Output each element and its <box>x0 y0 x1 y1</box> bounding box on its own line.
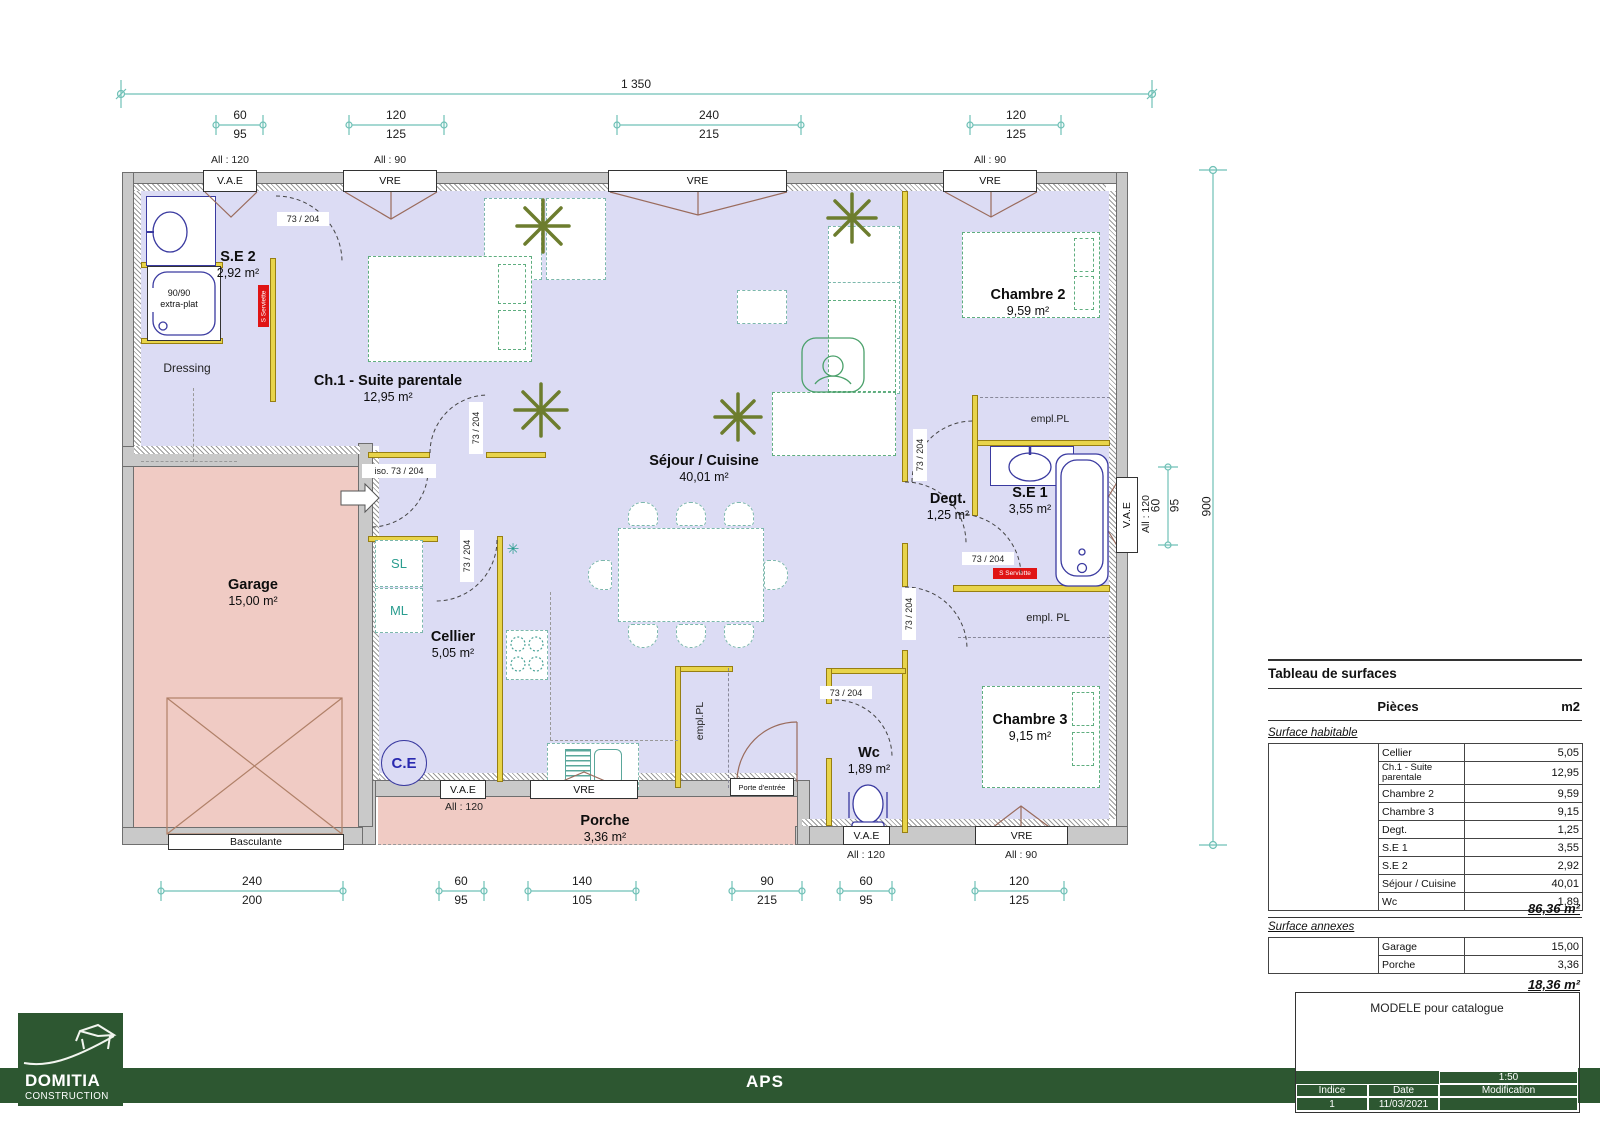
door-size-text: 73 / 204 <box>462 540 472 573</box>
washer-slot: SL <box>375 540 423 587</box>
window-label: VRE <box>687 175 709 187</box>
dim-right-a: 60 <box>1150 491 1163 521</box>
dryer-slot: ML <box>375 588 423 633</box>
chair <box>724 502 754 526</box>
row-value: 9,59 <box>1465 785 1583 803</box>
date-header: Date <box>1368 1084 1439 1097</box>
room-name: Porche <box>545 812 665 830</box>
row-value: 3,55 <box>1465 839 1583 857</box>
annexes-total: 18,36 m² <box>1420 977 1580 992</box>
window-label: V.A.E <box>217 175 243 187</box>
annexes-section-label: Surface annexes <box>1268 921 1428 933</box>
modification-label: Modification <box>1482 1085 1535 1096</box>
dim-a: 90 <box>737 875 797 888</box>
dim-b: 95 <box>431 894 491 907</box>
shower-size: 90/90 <box>168 288 191 298</box>
house-icon <box>18 1019 123 1071</box>
window-label: VRE <box>379 175 401 187</box>
modification-value <box>1439 1097 1578 1111</box>
room-label-se1: S.E 1 3,55 m² <box>950 484 1110 518</box>
door-size-text: iso. 73 / 204 <box>374 466 423 476</box>
dryer-label: ML <box>376 589 422 632</box>
dim-b: 215 <box>679 128 739 141</box>
date-value-text: 11/03/2021 <box>1379 1099 1428 1110</box>
bed-ch1-pillow-2 <box>498 310 526 350</box>
insulation-bottom-right <box>802 819 1109 826</box>
row-label: Garage <box>1379 938 1465 956</box>
row-label: S.E 2 <box>1379 857 1465 875</box>
dim-pair: 6095 <box>836 875 896 907</box>
room-area: 15,00 m² <box>183 594 323 610</box>
company-logo: DOMITIA CONSTRUCTION <box>18 1013 123 1106</box>
room-name: Dressing <box>163 361 210 375</box>
indice-header: Indice <box>1296 1084 1368 1097</box>
row-value: 40,01 <box>1465 875 1583 893</box>
dim-pair: 140105 <box>552 875 612 907</box>
door-size-label: 73 / 204 <box>902 588 916 640</box>
dim-b: 105 <box>552 894 612 907</box>
shelf-divider-1 <box>828 282 900 283</box>
door-size-text: 73 / 204 <box>471 412 481 445</box>
door-size-label: 73 / 204 <box>277 212 329 226</box>
habitable-table: Cellier5,05 Ch.1 - Suite parentale12,95 … <box>1268 743 1583 911</box>
kitchen-cabinet-2 <box>546 198 606 280</box>
side-table <box>737 290 787 324</box>
date-label: Date <box>1393 1085 1414 1096</box>
kitchen-zone-dash-v <box>550 592 551 740</box>
insulation-right <box>1109 191 1116 819</box>
room-area: 1,89 m² <box>804 762 934 778</box>
dim-b: 125 <box>986 128 1046 141</box>
shower-type: extra-plat <box>160 299 198 309</box>
dim-a: 240 <box>679 109 739 122</box>
sill-label: All : 120 <box>836 849 896 861</box>
wall-left <box>122 172 134 845</box>
row-value: 1,25 <box>1465 821 1583 839</box>
door-size-label: 73 / 204 <box>820 686 872 699</box>
chair <box>628 502 658 526</box>
dim-pair: 120125 <box>986 109 1046 141</box>
window-vae-wc: V.A.E <box>843 826 890 845</box>
bed-chambre2-pillow-1 <box>1074 238 1094 272</box>
window-vae-top-left: V.A.E <box>203 170 257 192</box>
date-value: 11/03/2021 <box>1368 1097 1439 1111</box>
room-name: Chambre 3 <box>950 711 1110 729</box>
window-vre-sejour: VRE <box>608 170 787 192</box>
closet-label-chambre2: empl.PL <box>1010 413 1090 425</box>
habitable-section-label: Surface habitable <box>1268 727 1428 739</box>
dressing-dash-v <box>193 388 194 462</box>
partition-hall-mid <box>902 543 908 587</box>
room-name: Wc <box>804 744 934 762</box>
room-label-chambre3: Chambre 3 9,15 m² <box>950 711 1110 745</box>
ch2-closet-dash <box>980 397 1110 398</box>
panel-rule <box>1268 659 1582 661</box>
room-label-chambre2: Chambre 2 9,59 m² <box>948 286 1108 320</box>
window-vae-cellier: V.A.E <box>440 780 486 799</box>
room-label-ch1: Ch.1 - Suite parentale 12,95 m² <box>288 372 488 406</box>
habitable-total: 86,36 m² <box>1420 901 1580 916</box>
row-label: Cellier <box>1379 744 1465 762</box>
towel-dryer-se2: S Serviette <box>258 285 269 327</box>
row-label: Chambre 3 <box>1379 803 1465 821</box>
room-area: 9,59 m² <box>948 304 1108 320</box>
partition-ch1-south-left <box>368 452 430 458</box>
room-label-garage: Garage 15,00 m² <box>183 576 323 610</box>
room-name: Chambre 2 <box>948 286 1108 304</box>
room-name: Séjour / Cuisine <box>604 452 804 470</box>
room-label-porche: Porche 3,36 m² <box>545 812 665 846</box>
row-value: 2,92 <box>1465 857 1583 875</box>
hood-icon: ✳ <box>503 540 523 560</box>
window-label: VRE <box>1011 830 1033 842</box>
annexes-rows: Garage15,00 Porche3,36 <box>1268 937 1583 974</box>
insulation-garage-top <box>134 446 360 454</box>
garage-door-box: Basculante <box>168 834 344 850</box>
towel-dryer-se1: S Serviette <box>993 568 1037 579</box>
room-area: 12,95 m² <box>288 390 488 406</box>
chair <box>676 502 706 526</box>
window-label: VRE <box>979 175 1001 187</box>
dim-pair: 120125 <box>366 109 426 141</box>
dim-pair: 6095 <box>210 109 270 141</box>
sill-label: All : 90 <box>360 154 420 166</box>
dim-a: 60 <box>210 109 270 122</box>
sofa-vertical <box>828 300 896 392</box>
chair <box>588 560 612 590</box>
kitchen-zone-dash-h <box>550 740 678 741</box>
partition-ch1-south-right <box>486 452 546 458</box>
sill-label: All : 90 <box>960 154 1020 166</box>
row-label: Degt. <box>1379 821 1465 839</box>
room-area: 40,01 m² <box>604 470 804 486</box>
dim-pair: 240215 <box>679 109 739 141</box>
sill-label: All : 120 <box>200 154 260 166</box>
dim-a: 240 <box>222 875 282 888</box>
room-name: S.E 1 <box>950 484 1110 502</box>
dim-a: 60 <box>431 875 491 888</box>
company-sub: CONSTRUCTION <box>25 1091 109 1102</box>
insulation-left <box>134 191 141 446</box>
dim-a: 120 <box>989 875 1049 888</box>
partition-se1-south <box>953 585 1110 592</box>
towel-dryer-label: S Serviette <box>999 570 1031 577</box>
sill-label: All : 120 <box>434 801 494 813</box>
door-size-text: 73 / 204 <box>915 439 925 472</box>
partition-wc-north <box>826 668 906 674</box>
surface-table-title: Tableau de surfaces <box>1268 666 1528 681</box>
title-block: MODELE pour catalogue 1:50 Indice Date M… <box>1295 992 1580 1113</box>
indice-label: Indice <box>1319 1085 1346 1096</box>
room-label-cellier: Cellier 5,05 m² <box>383 628 523 662</box>
room-name: Ch.1 - Suite parentale <box>288 372 488 390</box>
room-label-wc: Wc 1,89 m² <box>804 744 934 778</box>
wall-garage-cellier <box>358 443 373 827</box>
garage-door-label: Basculante <box>230 836 282 848</box>
dim-overall-height: 900 <box>1201 477 1214 537</box>
dim-pair: 90215 <box>737 875 797 907</box>
room-area: 9,15 m² <box>950 729 1110 745</box>
partition-entry-closet-west <box>675 666 681 788</box>
washer-label: SL <box>376 541 422 586</box>
window-vre-cuisine: VRE <box>530 780 638 799</box>
row-value: 5,05 <box>1465 744 1583 762</box>
panel-rule <box>1268 917 1582 918</box>
entry-door-label: Porte d'entrée <box>739 783 786 792</box>
wall-porch-step-right <box>797 780 810 845</box>
entry-closet-dash <box>728 668 729 788</box>
dim-a: 120 <box>366 109 426 122</box>
row-value: 9,15 <box>1465 803 1583 821</box>
partition-entry-closet-top <box>675 666 733 672</box>
dim-b: 200 <box>222 894 282 907</box>
dim-b: 215 <box>737 894 797 907</box>
annexes-table: Garage15,00 Porche3,36 <box>1268 937 1583 974</box>
dressing-dash-h <box>141 461 237 462</box>
sill-label: All : 90 <box>991 849 1051 861</box>
room-name: Cellier <box>383 628 523 646</box>
indice-value: 1 <box>1296 1097 1368 1111</box>
surface-table-col-unit: m2 <box>1536 699 1580 714</box>
partition-sejour-ch2 <box>902 191 908 482</box>
closet-label-entry: empl.PL <box>694 691 706 751</box>
water-heater: C.E <box>381 740 427 786</box>
room-area: 3,36 m² <box>545 830 665 846</box>
room-area: 5,05 m² <box>383 646 523 662</box>
closet-label-se1: empl. PL <box>1008 612 1088 624</box>
room-name: Garage <box>183 576 323 594</box>
dim-b: 125 <box>989 894 1049 907</box>
row-label: Séjour / Cuisine <box>1379 875 1465 893</box>
row-value: 12,95 <box>1465 762 1583 785</box>
dim-pair: 120125 <box>989 875 1049 907</box>
dim-pair: 6095 <box>431 875 491 907</box>
door-size-text: 73 / 204 <box>972 554 1005 564</box>
dim-pair: 240200 <box>222 875 282 907</box>
window-vre-chambre3: VRE <box>975 826 1068 845</box>
entry-door-box: Porte d'entrée <box>730 778 794 796</box>
habitable-rows: Cellier5,05 Ch.1 - Suite parentale12,95 … <box>1268 743 1583 911</box>
dim-right-b: 95 <box>1169 491 1182 521</box>
window-label: V.A.E <box>450 784 476 796</box>
room-label-dressing: Dressing <box>137 361 237 375</box>
door-size-label: 73 / 204 <box>460 530 474 582</box>
panel-rule <box>1268 688 1582 689</box>
window-vre-chambre2: VRE <box>943 170 1037 192</box>
company-name: DOMITIA <box>25 1071 100 1091</box>
dim-b: 95 <box>836 894 896 907</box>
se1-closet-dash <box>958 637 1110 638</box>
window-vre-ch1: VRE <box>343 170 437 192</box>
partition-ch3-west <box>902 650 908 833</box>
door-size-label: 73 / 204 <box>962 552 1014 565</box>
door-size-label: 73 / 204 <box>469 402 483 454</box>
door-size-label-iso: iso. 73 / 204 <box>362 464 436 478</box>
door-size-text: 73 / 204 <box>830 688 863 698</box>
modification-header: Modification <box>1439 1084 1578 1097</box>
dim-a: 120 <box>986 109 1046 122</box>
dim-overall-width: 1 350 <box>576 78 696 91</box>
row-label: Porche <box>1379 956 1465 974</box>
window-label: VRE <box>573 784 595 796</box>
model-label: MODELE pour catalogue <box>1296 1001 1578 1015</box>
scale-cell: 1:50 <box>1439 1071 1578 1084</box>
panel-rule <box>1268 720 1582 721</box>
floor-plan-sheet: S Serviette S Serviette 90/90 extra-plat… <box>0 0 1600 1131</box>
room-area: 3,55 m² <box>950 502 1110 518</box>
window-label: V.A.E <box>854 830 880 842</box>
dim-b: 125 <box>366 128 426 141</box>
towel-dryer-label: S Serviette <box>260 290 267 322</box>
scale-value: 1:50 <box>1499 1072 1518 1083</box>
row-value: 3,36 <box>1465 956 1583 974</box>
row-label: S.E 1 <box>1379 839 1465 857</box>
dim-a: 140 <box>552 875 612 888</box>
room-label-se2: S.E 2 2,92 m² <box>163 248 313 282</box>
dim-a: 60 <box>836 875 896 888</box>
row-value: 15,00 <box>1465 938 1583 956</box>
row-label: Chambre 2 <box>1379 785 1465 803</box>
surface-table-col-pieces: Pièces <box>1348 699 1448 714</box>
bed-ch1-pillow-1 <box>498 264 526 304</box>
room-area: 2,92 m² <box>163 266 313 282</box>
title-block-grid: 1:50 Indice Date Modification 1 11/03/20… <box>1296 1071 1578 1111</box>
door-size-text: 73 / 204 <box>904 598 914 631</box>
room-name: S.E 2 <box>163 248 313 266</box>
dim-b: 95 <box>210 128 270 141</box>
door-size-label: 73 / 204 <box>913 429 927 481</box>
footer-doc-type: APS <box>600 1072 930 1092</box>
window-label: V.A.E <box>1121 502 1133 528</box>
row-label: Ch.1 - Suite parentale <box>1379 762 1465 785</box>
title-block-top: MODELE pour catalogue <box>1296 993 1578 1071</box>
se1-sink-counter <box>990 446 1074 486</box>
indice-value-text: 1 <box>1329 1099 1335 1110</box>
room-label-sejour: Séjour / Cuisine 40,01 m² <box>604 452 804 486</box>
window-vae-se1: V.A.E <box>1116 477 1138 553</box>
dining-table <box>618 528 764 622</box>
floor-garage <box>134 467 358 827</box>
water-heater-label: C.E <box>391 755 416 772</box>
door-size-text: 73 / 204 <box>287 214 320 224</box>
sofa-horizontal <box>772 392 896 456</box>
se2-shower-label: 90/90 extra-plat <box>150 288 208 312</box>
